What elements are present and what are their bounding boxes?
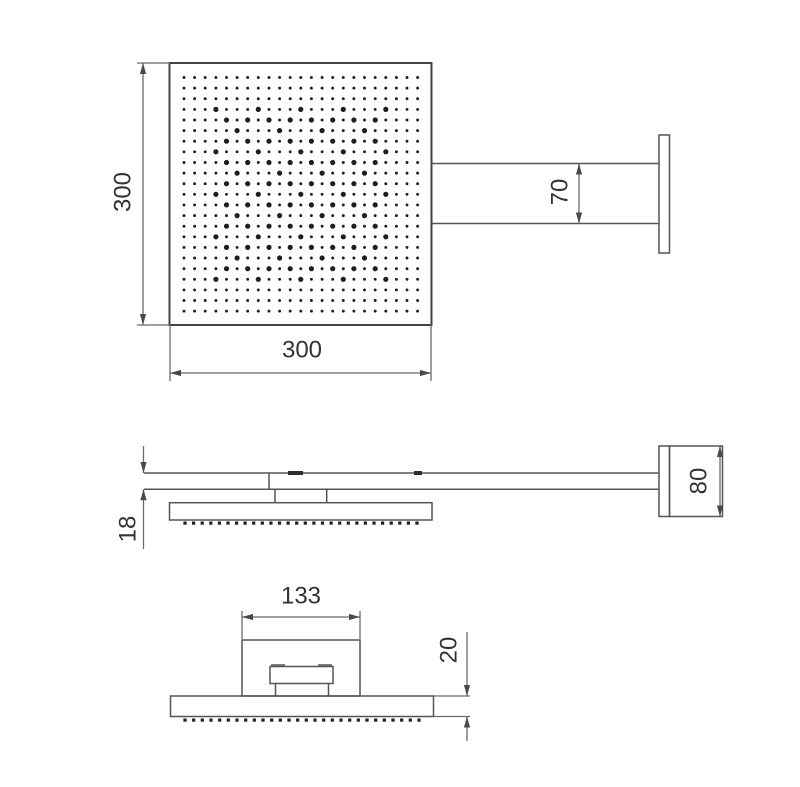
spray-dot: [257, 203, 260, 206]
spray-dot: [342, 299, 345, 302]
dimension-arrow: [464, 717, 470, 728]
spray-dot: [406, 246, 409, 249]
spray-dot: [225, 257, 228, 260]
spray-dot: [406, 310, 409, 313]
spray-dot: [331, 97, 334, 100]
spray-dot: [341, 149, 346, 154]
spray-dot: [193, 150, 196, 153]
spray-dot: [416, 225, 419, 228]
spray-dot: [204, 267, 207, 270]
dimension-arrow: [464, 685, 470, 696]
spray-dot: [213, 277, 218, 282]
spray-dot: [321, 182, 324, 185]
spray-dot: [363, 182, 366, 185]
spray-dot: [224, 117, 229, 122]
spray-dot: [246, 108, 249, 111]
spray-dot: [236, 225, 239, 228]
spray-dot: [310, 97, 313, 100]
spray-dot: [278, 119, 281, 122]
spray-dot: [321, 235, 324, 238]
spray-dot: [321, 161, 324, 164]
spray-dot: [384, 76, 387, 79]
spray-dot: [362, 255, 367, 260]
spray-dot: [298, 192, 303, 197]
spray-dot: [374, 76, 377, 79]
nozzle-dot: [227, 719, 230, 722]
spray-dot: [309, 117, 314, 122]
nozzle-dot: [218, 522, 221, 525]
spray-dot: [309, 224, 314, 229]
spray-dot: [384, 119, 387, 122]
spray-dot: [363, 267, 366, 270]
spray-dot: [406, 97, 409, 100]
spray-dot: [395, 182, 398, 185]
dimension-wall-plate-height: 80: [685, 446, 720, 517]
nozzle-dot: [347, 522, 350, 525]
spray-dot: [278, 97, 281, 100]
spray-dot: [395, 97, 398, 100]
spray-dot: [257, 140, 260, 143]
spray-dot: [193, 87, 196, 90]
spray-dot: [225, 97, 228, 100]
spray-dot: [416, 246, 419, 249]
spray-dot: [214, 172, 217, 175]
spray-dot: [383, 149, 388, 154]
spray-dot: [352, 129, 355, 132]
spray-dot: [266, 266, 271, 271]
spray-dot: [236, 87, 239, 90]
spray-dot: [183, 87, 186, 90]
spray-dot: [183, 310, 186, 313]
spray-dot: [374, 150, 377, 153]
spray-dot: [342, 87, 345, 90]
spray-dot: [374, 257, 377, 260]
spray-dot: [309, 245, 314, 250]
spray-dot: [257, 97, 260, 100]
spray-dot: [246, 278, 249, 281]
dimension-label-arm-width: 70: [546, 179, 573, 206]
nozzle-dot: [279, 719, 282, 722]
spray-dot: [384, 214, 387, 217]
spray-dot: [299, 310, 302, 313]
spray-dot: [236, 203, 239, 206]
spray-dot: [351, 117, 356, 122]
spray-dot: [342, 267, 345, 270]
spray-dot: [310, 172, 313, 175]
spray-dot: [278, 140, 281, 143]
nozzle-dot: [390, 522, 393, 525]
spray-dot: [204, 257, 207, 260]
spray-dot: [416, 108, 419, 111]
spray-dot: [331, 76, 334, 79]
spray-dot: [321, 246, 324, 249]
spray-dot: [406, 278, 409, 281]
spray-dot: [257, 267, 260, 270]
spray-dot: [363, 310, 366, 313]
spray-dot: [278, 76, 281, 79]
spray-dot: [406, 299, 409, 302]
spray-dot: [268, 150, 271, 153]
spray-dot: [224, 266, 229, 271]
spray-dot: [277, 255, 282, 260]
spray-dot: [406, 172, 409, 175]
spray-dot: [236, 76, 239, 79]
spray-dot: [416, 299, 419, 302]
nozzle-dot: [415, 522, 418, 525]
spray-dot: [352, 310, 355, 313]
nozzle-dot: [296, 719, 299, 722]
spray-dot: [225, 299, 228, 302]
spray-dot: [321, 299, 324, 302]
spray-dot: [320, 171, 325, 176]
spray-dot: [321, 267, 324, 270]
spray-dot: [416, 257, 419, 260]
nozzle-dot: [304, 522, 307, 525]
spray-dot: [395, 257, 398, 260]
spray-dot: [352, 299, 355, 302]
spray-dot: [266, 139, 271, 144]
spray-dot: [266, 181, 271, 186]
spray-dot: [341, 277, 346, 282]
spray-dot: [383, 277, 388, 282]
spray-dot: [416, 193, 419, 196]
spray-dot: [384, 182, 387, 185]
spray-dot: [342, 203, 345, 206]
dimension-head-width: 300: [170, 325, 431, 381]
spray-dot: [183, 214, 186, 217]
nozzle-dot: [269, 522, 272, 525]
spray-dot: [256, 234, 261, 239]
spray-dot: [257, 299, 260, 302]
spray-dot: [268, 108, 271, 111]
spray-dot: [406, 140, 409, 143]
spray-dot: [299, 87, 302, 90]
spray-dot: [246, 97, 249, 100]
dimension-label-head-width: 300: [282, 336, 322, 363]
spray-dot: [352, 257, 355, 260]
spray-dot: [321, 203, 324, 206]
spray-dot: [214, 129, 217, 132]
spray-dot: [236, 97, 239, 100]
spray-dot: [236, 108, 239, 111]
spray-dot: [288, 139, 293, 144]
spray-dot: [288, 181, 293, 186]
spray-dot: [278, 246, 281, 249]
technical-drawing-canvas: 300 300 70 18: [0, 0, 800, 787]
nozzle-dot: [261, 719, 264, 722]
spray-dot: [183, 288, 186, 291]
spray-dot: [416, 172, 419, 175]
dimension-arm-thickness: 18: [114, 446, 143, 549]
spray-dot: [395, 140, 398, 143]
spray-dot: [395, 225, 398, 228]
spray-dot: [342, 119, 345, 122]
spray-dot: [395, 193, 398, 196]
spray-dot: [384, 87, 387, 90]
spray-dot: [299, 129, 302, 132]
spray-dot: [321, 278, 324, 281]
spray-dot: [352, 193, 355, 196]
spray-dot: [299, 161, 302, 164]
spray-dot: [374, 288, 377, 291]
spray-dot: [277, 213, 282, 218]
spray-dot: [310, 76, 313, 79]
spray-dot: [406, 193, 409, 196]
side-view: 18 80: [114, 446, 722, 549]
spray-dot: [268, 97, 271, 100]
spray-dot: [416, 310, 419, 313]
spray-dot: [299, 172, 302, 175]
spray-dot: [342, 288, 345, 291]
spray-dot: [384, 203, 387, 206]
spray-dot: [416, 119, 419, 122]
spray-dot: [373, 202, 378, 207]
spray-dot: [384, 225, 387, 228]
spray-dot: [352, 108, 355, 111]
spray-dot: [373, 139, 378, 144]
spray-dot: [330, 266, 335, 271]
nozzle-dot: [348, 719, 351, 722]
spray-dot: [256, 192, 261, 197]
nozzle-dot: [400, 719, 403, 722]
spray-dot: [321, 76, 324, 79]
dimension-arrow: [576, 213, 582, 224]
spray-dot: [299, 119, 302, 122]
spray-dot: [331, 193, 334, 196]
spray-dot: [204, 246, 207, 249]
spray-dot: [331, 150, 334, 153]
spray-dot: [351, 160, 356, 165]
spray-dot: [214, 214, 217, 217]
dimension-label-plate-thickness: 20: [435, 637, 462, 664]
spray-dot: [362, 213, 367, 218]
spray-dot: [384, 267, 387, 270]
spray-dot: [288, 117, 293, 122]
spray-dot: [374, 97, 377, 100]
spray-dot: [236, 310, 239, 313]
nozzle-dot: [391, 719, 394, 722]
nozzle-dot: [201, 719, 204, 722]
head-plate-side: [170, 503, 433, 520]
spray-dot: [310, 299, 313, 302]
nozzle-dot: [381, 522, 384, 525]
spray-dot: [268, 235, 271, 238]
spray-dot: [193, 161, 196, 164]
spray-dot: [373, 266, 378, 271]
spray-dot: [289, 150, 292, 153]
drawing-sheet: 300 300 70 18: [0, 0, 800, 787]
spray-dot: [395, 246, 398, 249]
spray-dot: [288, 202, 293, 207]
spray-dot: [183, 203, 186, 206]
spray-dot: [224, 160, 229, 165]
spray-dot: [384, 97, 387, 100]
spray-dot: [406, 129, 409, 132]
spray-dot: [214, 140, 217, 143]
nozzle-dot: [192, 719, 195, 722]
spray-dot: [214, 203, 217, 206]
spray-dot: [289, 257, 292, 260]
spray-dot: [204, 97, 207, 100]
spray-dot: [268, 87, 271, 90]
spray-dot: [351, 139, 356, 144]
spray-dot: [204, 87, 207, 90]
spray-dot: [257, 257, 260, 260]
spray-dot: [416, 288, 419, 291]
spray-dot: [395, 288, 398, 291]
nozzle-dot: [331, 719, 334, 722]
spray-dot: [384, 310, 387, 313]
spray-dot: [342, 246, 345, 249]
spray-dot: [321, 150, 324, 153]
spray-dot: [268, 214, 271, 217]
spray-dot: [193, 288, 196, 291]
spray-dot: [288, 266, 293, 271]
spray-dot: [257, 161, 260, 164]
spray-dot: [257, 310, 260, 313]
dimension-bracket-width: 133: [242, 582, 360, 639]
spray-dot: [204, 310, 207, 313]
top-view: 300 300 70: [109, 63, 669, 381]
spray-dot: [225, 288, 228, 291]
spray-dot: [277, 128, 282, 133]
spray-dot: [246, 87, 249, 90]
spray-dot: [395, 235, 398, 238]
nozzle-dot: [330, 522, 333, 525]
spray-dot: [298, 107, 303, 112]
spray-dot: [193, 193, 196, 196]
spray-dot: [278, 225, 281, 228]
spray-dot: [374, 108, 377, 111]
spray-dot: [224, 202, 229, 207]
spray-dot: [204, 76, 207, 79]
spray-dot: [289, 129, 292, 132]
spray-dot: [395, 267, 398, 270]
spray-dot: [235, 213, 240, 218]
nozzle-dot: [417, 719, 420, 722]
spray-dot: [193, 267, 196, 270]
spray-dot: [298, 277, 303, 282]
spray-dot: [278, 150, 281, 153]
spray-dot: [321, 225, 324, 228]
spray-dot: [288, 224, 293, 229]
wall-flange-plan: [659, 135, 670, 253]
spray-dot: [330, 160, 335, 165]
nozzle-dot: [321, 522, 324, 525]
spray-dot: [321, 288, 324, 291]
spray-dot: [363, 225, 366, 228]
spray-dot: [225, 214, 228, 217]
spray-dot: [299, 299, 302, 302]
spray-dot: [183, 150, 186, 153]
spray-dot: [330, 202, 335, 207]
spray-dot: [278, 278, 281, 281]
spray-dot: [363, 235, 366, 238]
spray-dot: [395, 172, 398, 175]
nozzle-row-front: [183, 719, 420, 722]
spray-dot: [331, 257, 334, 260]
spray-dot: [204, 288, 207, 291]
spray-dot: [331, 288, 334, 291]
spray-dot: [289, 76, 292, 79]
spray-dot: [224, 139, 229, 144]
spray-dot: [289, 172, 292, 175]
spray-dot: [299, 246, 302, 249]
spray-dot: [246, 172, 249, 175]
spray-dot: [416, 267, 419, 270]
spray-dot: [193, 278, 196, 281]
spray-dot: [183, 193, 186, 196]
spray-dot: [395, 278, 398, 281]
spray-dot: [204, 225, 207, 228]
spray-dot: [299, 225, 302, 228]
spray-dot: [374, 214, 377, 217]
spray-dot: [406, 235, 409, 238]
spray-dot: [278, 108, 281, 111]
dimension-arrow: [140, 63, 146, 74]
spray-dot: [384, 129, 387, 132]
spray-dot: [331, 214, 334, 217]
front-view: 133 20: [171, 582, 471, 741]
spray-dot: [225, 278, 228, 281]
spray-dot: [289, 278, 292, 281]
spray-dot: [363, 97, 366, 100]
spray-dot: [342, 97, 345, 100]
spray-dot: [309, 266, 314, 271]
spray-dot: [225, 172, 228, 175]
spray-dot: [278, 193, 281, 196]
nozzle-dot: [287, 719, 290, 722]
spray-dot: [342, 214, 345, 217]
spray-dot: [204, 129, 207, 132]
spray-dot: [416, 235, 419, 238]
spray-dot: [193, 108, 196, 111]
spray-dot: [299, 140, 302, 143]
spray-dot: [278, 267, 281, 270]
spray-dot: [363, 193, 366, 196]
spray-dot: [310, 193, 313, 196]
spray-dot: [299, 182, 302, 185]
spray-dot: [342, 129, 345, 132]
spray-dot: [406, 76, 409, 79]
spray-dot: [331, 108, 334, 111]
spray-dot: [246, 193, 249, 196]
spray-dot: [245, 160, 250, 165]
spray-dot: [183, 225, 186, 228]
spray-dot: [374, 193, 377, 196]
spray-dot: [320, 213, 325, 218]
spray-dot: [246, 299, 249, 302]
spray-dot: [395, 214, 398, 217]
spray-dot: [416, 140, 419, 143]
spray-dot: [246, 257, 249, 260]
nozzle-dot: [183, 719, 186, 722]
spray-dot: [299, 288, 302, 291]
spray-dot: [298, 234, 303, 239]
nozzle-dot: [244, 522, 247, 525]
spray-dot: [245, 245, 250, 250]
spray-dot: [193, 182, 196, 185]
nozzle-dot: [209, 719, 212, 722]
spray-dot: [278, 87, 281, 90]
spray-dot: [406, 267, 409, 270]
nozzle-dot: [253, 719, 256, 722]
spray-dot: [309, 202, 314, 207]
spray-dot: [289, 97, 292, 100]
spray-dot: [193, 257, 196, 260]
spray-dot: [342, 76, 345, 79]
spray-dot: [214, 299, 217, 302]
